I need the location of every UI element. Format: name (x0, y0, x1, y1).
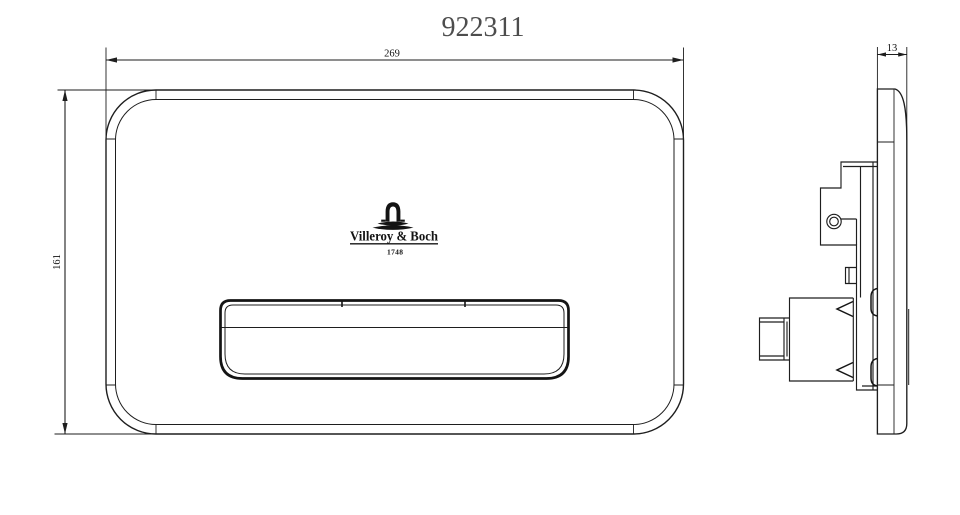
arrow-right-icon (898, 52, 907, 56)
bracket-notch (840, 219, 857, 245)
flush-button-recess (221, 301, 569, 379)
height-extension-lines (55, 90, 161, 434)
housing-inner-lines (861, 162, 878, 390)
plate-inner-outline (116, 100, 675, 425)
depth-dimension-label: 13 (887, 43, 898, 54)
height-dimension-label: 161 (52, 254, 63, 270)
width-extension-lines (106, 48, 684, 141)
plate-profile (877, 89, 908, 434)
logo-brand-text: Villeroy & Boch (350, 229, 438, 244)
arrow-up-icon (62, 90, 67, 101)
technical-drawing: 922311 Villeroy & Boch 1748 (0, 0, 960, 515)
logo-year-text: 1748 (387, 248, 403, 257)
button-stem-inner-lines (760, 318, 788, 360)
width-dimension-label: 269 (384, 49, 400, 60)
button-box (790, 298, 854, 381)
push-button-unit (760, 298, 854, 381)
drawing-number: 922311 (442, 12, 525, 43)
recess-inner-edge (225, 305, 564, 374)
side-tab (846, 268, 857, 284)
arrow-down-icon (62, 423, 67, 434)
plate-profile-outline (877, 89, 906, 434)
fixing-screw-icon (827, 214, 841, 228)
snap-clips (837, 302, 853, 378)
logo-crest-icon (373, 202, 414, 230)
actuator-housing (821, 162, 878, 390)
corner-tangent-ticks (106, 90, 684, 434)
button-stem (760, 318, 790, 360)
arrow-right-icon (673, 57, 684, 62)
arrow-left-icon (106, 57, 117, 62)
front-view: Villeroy & Boch 1748 269 161 (52, 48, 684, 435)
recess-outer-edge (221, 301, 569, 379)
retaining-hooks (871, 289, 877, 387)
arrow-left-icon (877, 52, 886, 56)
plate-outer-outline (106, 90, 684, 434)
width-dimension: 269 (106, 48, 684, 141)
side-view: 13 (760, 43, 909, 434)
brand-logo: Villeroy & Boch 1748 (350, 202, 438, 256)
